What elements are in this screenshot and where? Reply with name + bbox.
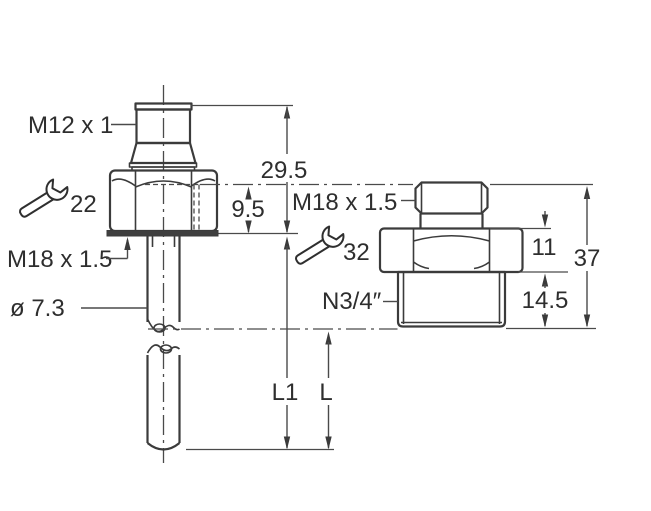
dimension-14-5: 14.5 xyxy=(522,274,569,328)
svg-text:L1: L1 xyxy=(272,379,299,406)
wrench-size-22-label: 22 xyxy=(70,191,97,218)
m18-thread-label-left: M18 x 1.5 xyxy=(7,246,112,273)
wrench-icon-32 xyxy=(289,220,350,272)
svg-text:11: 11 xyxy=(532,234,557,261)
technical-drawing: M12 x 1 22 M18 x 1.5 ø 7.3 29.5 xyxy=(0,0,651,511)
wrench-icon-22 xyxy=(13,173,74,225)
thread-flange xyxy=(107,231,218,237)
m12-thread-label: M12 x 1 xyxy=(28,112,113,139)
probe-tip xyxy=(148,443,180,450)
svg-text:9.5: 9.5 xyxy=(231,196,264,223)
dimension-l1: L1 xyxy=(272,237,299,450)
wrench-size-32-label: 32 xyxy=(343,239,370,266)
svg-text:29.5: 29.5 xyxy=(261,157,308,184)
hex-nut-sw32 xyxy=(380,229,523,273)
adapter-fitting-view: M18 x 1.5 32 N3/4″ 11 14.5 xyxy=(148,183,600,450)
dimension-11: 11 xyxy=(490,211,568,272)
m18-boss xyxy=(416,183,488,229)
m18-thread-label-right: M18 x 1.5 xyxy=(292,189,397,216)
sensor-side-view: M12 x 1 22 M18 x 1.5 ø 7.3 29.5 xyxy=(7,85,413,463)
svg-text:14.5: 14.5 xyxy=(522,287,569,314)
probe-diameter-label: ø 7.3 xyxy=(10,295,65,322)
npt-thread-body xyxy=(398,272,505,327)
dimension-drawing-svg: M12 x 1 22 M18 x 1.5 ø 7.3 29.5 xyxy=(0,0,651,511)
svg-text:L: L xyxy=(319,379,332,406)
dimension-l: L xyxy=(319,332,332,450)
svg-text:37: 37 xyxy=(574,245,601,272)
npt-thread-label: N3/4″ xyxy=(322,288,382,315)
